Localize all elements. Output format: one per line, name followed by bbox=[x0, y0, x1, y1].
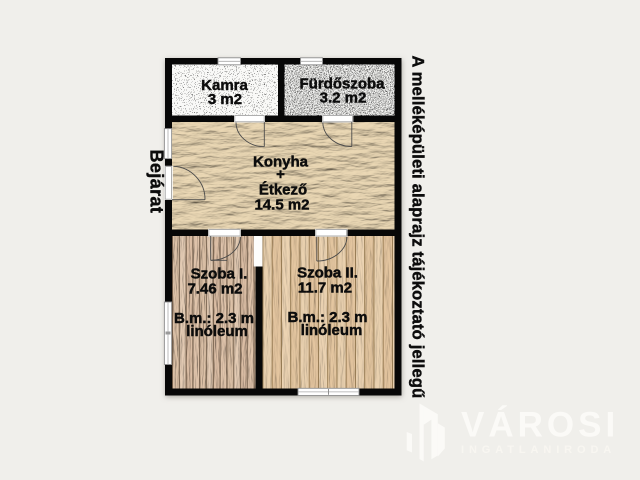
svg-text:7.46 m2: 7.46 m2 bbox=[187, 280, 242, 297]
svg-text:linóleum: linóleum bbox=[186, 323, 248, 340]
svg-text:INGATLANIRODA: INGATLANIRODA bbox=[461, 444, 616, 456]
svg-text:VÁROSI: VÁROSI bbox=[461, 405, 619, 445]
svg-text:Bejárat: Bejárat bbox=[147, 150, 167, 214]
svg-text:A melléképületi alaprajz tájék: A melléképületi alaprajz tájékoztató jel… bbox=[409, 56, 427, 399]
svg-text:linóleum: linóleum bbox=[301, 322, 363, 339]
svg-text:3 m2: 3 m2 bbox=[208, 91, 242, 108]
svg-text:11.7 m2: 11.7 m2 bbox=[298, 280, 352, 297]
svg-text:3.2 m2: 3.2 m2 bbox=[320, 90, 367, 107]
svg-text:14.5 m2: 14.5 m2 bbox=[254, 197, 309, 214]
svg-text:+: + bbox=[276, 166, 285, 183]
